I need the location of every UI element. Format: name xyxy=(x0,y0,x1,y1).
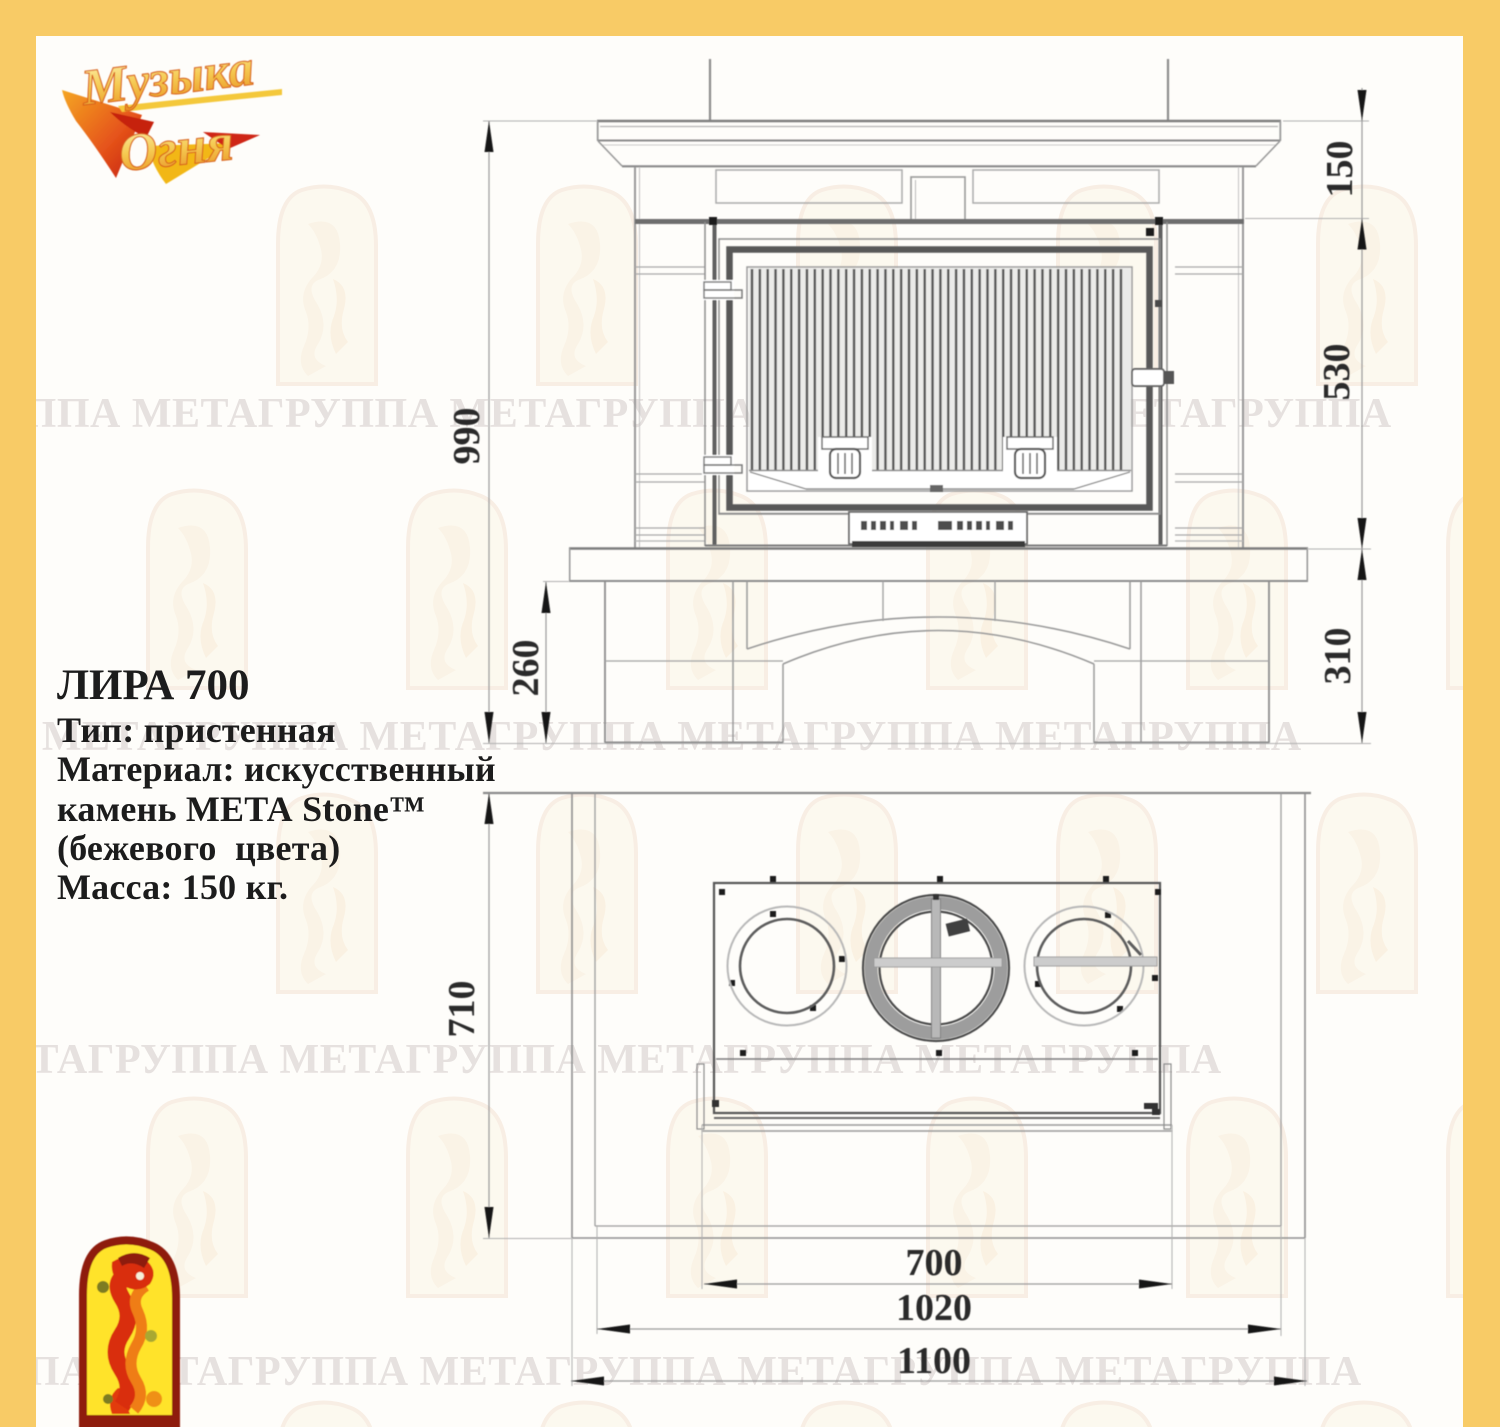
svg-text:Огня: Огня xyxy=(116,113,236,183)
svg-text:530: 530 xyxy=(1316,344,1358,401)
svg-text:ГРУППА МЕТАГРУППА МЕТАГРУППА М: ГРУППА МЕТАГРУППА МЕТАГРУППА МЕТАГРУППА … xyxy=(0,391,1392,437)
svg-text:260: 260 xyxy=(505,640,547,697)
svg-text:ГРУППА МЕТАГРУППА МЕТАГРУППА М: ГРУППА МЕТАГРУППА МЕТАГРУППА МЕТАГРУППА … xyxy=(0,1349,1362,1395)
svg-text:1100: 1100 xyxy=(897,1340,971,1382)
svg-text:Музыка: Музыка xyxy=(78,40,257,117)
svg-text:150: 150 xyxy=(1319,141,1361,198)
svg-text:310: 310 xyxy=(1317,628,1359,685)
svg-text:1020: 1020 xyxy=(896,1287,972,1329)
svg-text:ГРУППА МЕТАГРУППА МЕТАГРУППА М: ГРУППА МЕТАГРУППА МЕТАГРУППА МЕТАГРУППА … xyxy=(0,1037,1222,1083)
svg-text:700: 700 xyxy=(906,1242,963,1284)
svg-text:990: 990 xyxy=(446,408,488,465)
svg-text:710: 710 xyxy=(441,981,483,1038)
